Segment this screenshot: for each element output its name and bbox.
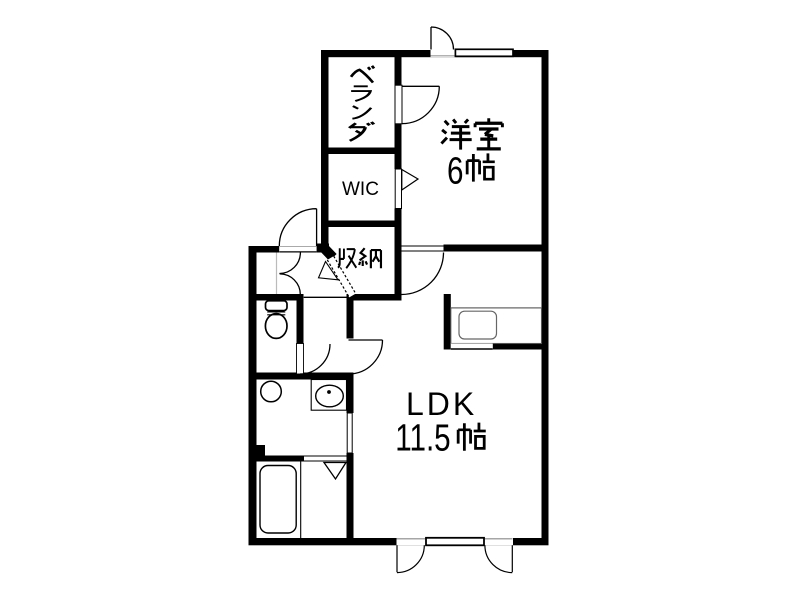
svg-text:6: 6 (447, 150, 463, 192)
svg-text:WIC: WIC (342, 179, 379, 200)
svg-text:11.5: 11.5 (395, 417, 450, 459)
